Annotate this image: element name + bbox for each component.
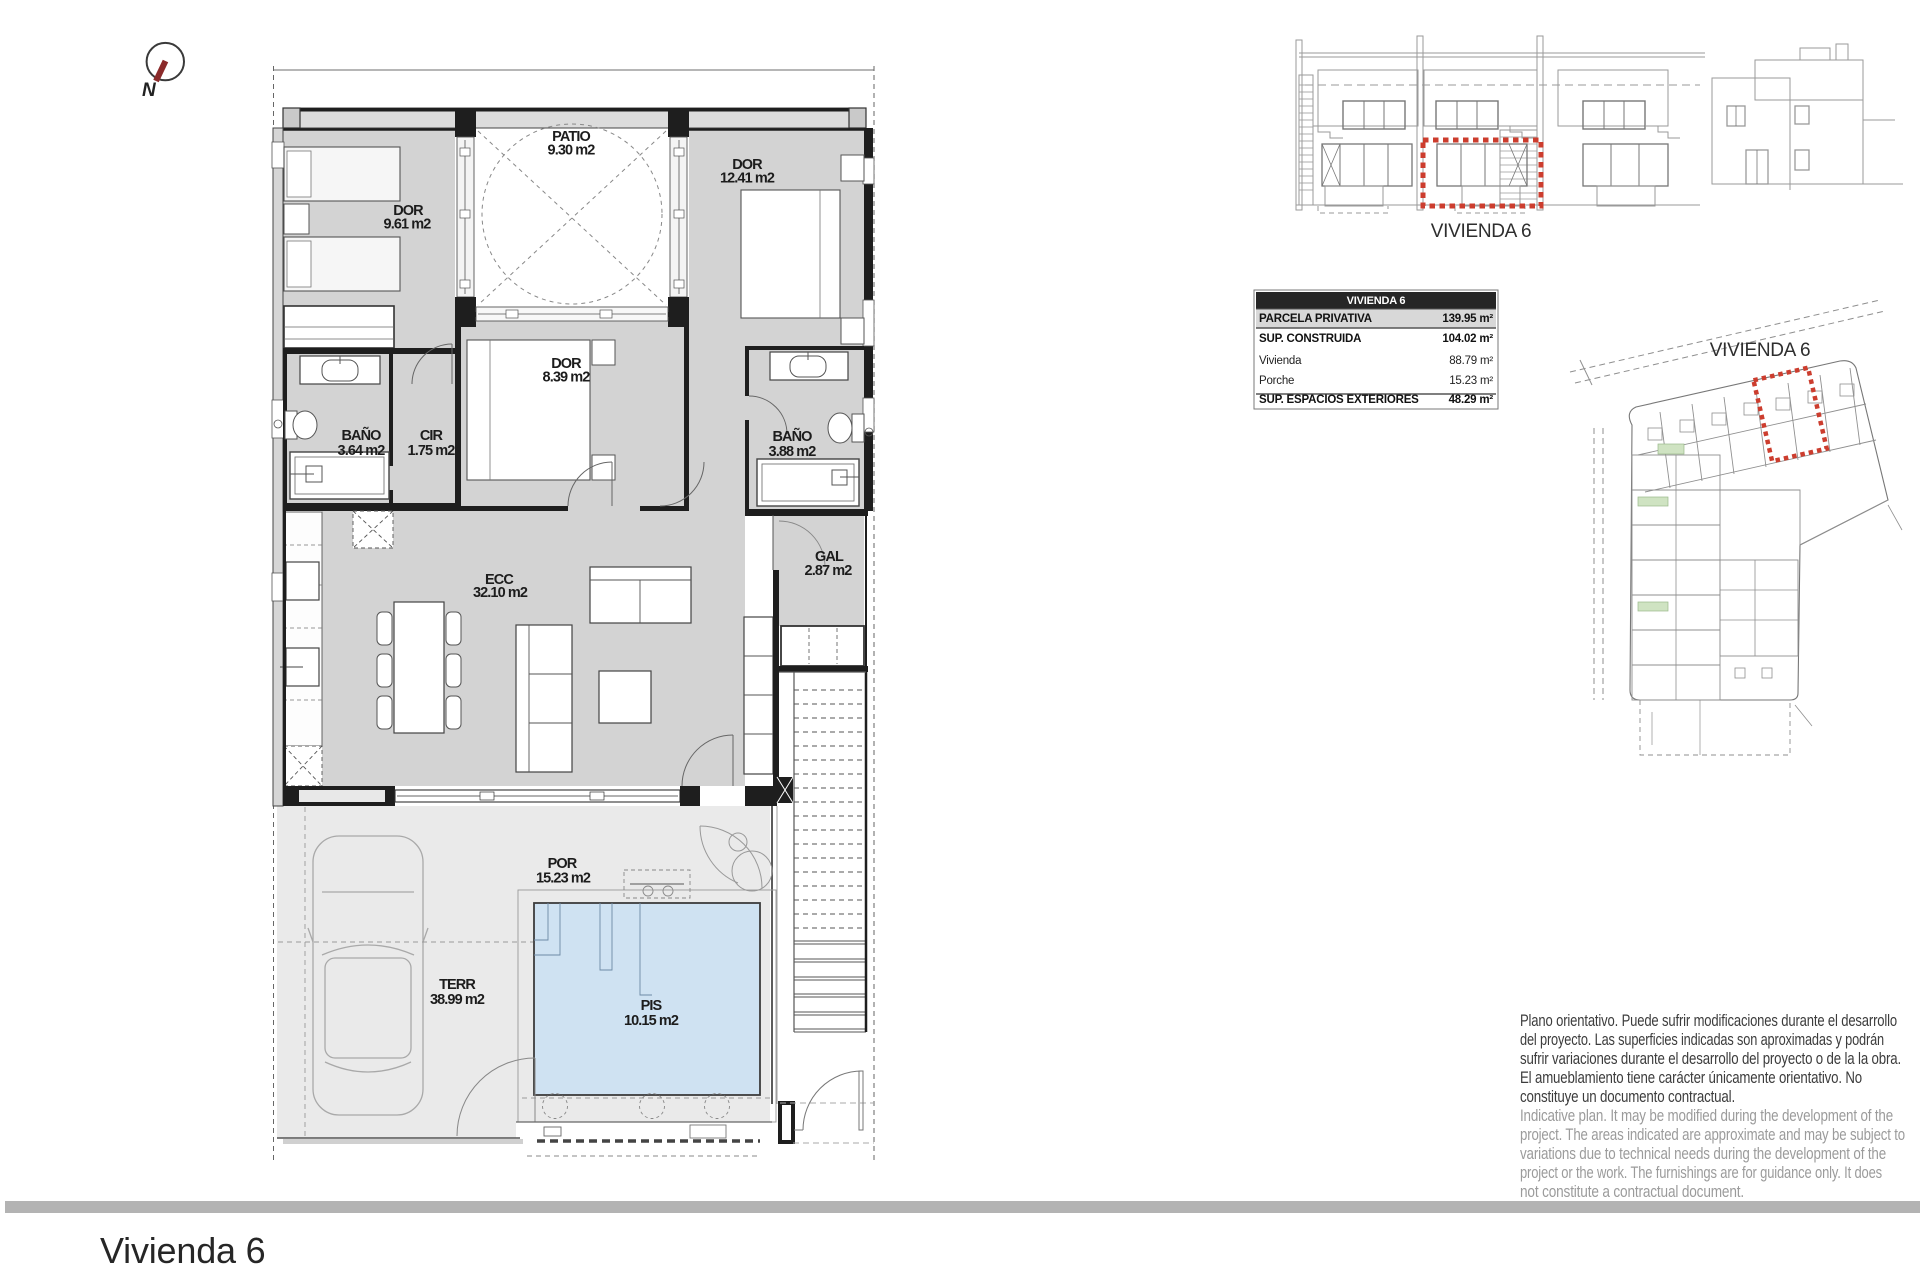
svg-text:VIVIENDA 6: VIVIENDA 6	[1431, 221, 1532, 242]
svg-text:SUP. ESPACIOS EXTERIORES: SUP. ESPACIOS EXTERIORES	[1259, 394, 1419, 406]
svg-text:VIVIENDA 6: VIVIENDA 6	[1347, 295, 1406, 307]
svg-text:88.79 m²: 88.79 m²	[1449, 355, 1493, 367]
svg-text:BAÑO3.64 m2: BAÑO3.64 m2	[338, 426, 386, 459]
svg-text:N: N	[142, 80, 157, 101]
svg-text:PATIO9.30 m2: PATIO9.30 m2	[548, 129, 596, 159]
svg-text:del proyecto. Las superficies: del proyecto. Las superficies indicadas …	[1520, 1030, 1884, 1049]
svg-text:sufrir variaciones durante el: sufrir variaciones durante el desarrollo…	[1520, 1049, 1901, 1068]
svg-text:Plano orientativo. Puede sufri: Plano orientativo. Puede sufrir modifica…	[1520, 1011, 1897, 1030]
svg-text:El amueblamiento tiene carácte: El amueblamiento tiene carácter únicamen…	[1520, 1068, 1862, 1087]
svg-text:variations due to technical ne: variations due to technical needs during…	[1520, 1144, 1886, 1163]
svg-text:SUP. CONSTRUIDA: SUP. CONSTRUIDA	[1259, 333, 1361, 345]
svg-text:constituye un documento contra: constituye un documento contractual.	[1520, 1087, 1735, 1106]
svg-text:Vivienda: Vivienda	[1259, 355, 1302, 367]
svg-text:PARCELA PRIVATIVA: PARCELA PRIVATIVA	[1259, 313, 1372, 325]
svg-text:project or the work. The furni: project or the work. The furnishings are…	[1520, 1163, 1882, 1182]
svg-text:VIVIENDA 6: VIVIENDA 6	[1710, 340, 1811, 361]
svg-text:104.02 m²: 104.02 m²	[1442, 333, 1493, 345]
svg-text:Porche: Porche	[1259, 375, 1294, 387]
svg-text:project. The areas indicated a: project. The areas indicated are approxi…	[1520, 1125, 1905, 1144]
svg-text:15.23 m²: 15.23 m²	[1449, 375, 1493, 387]
svg-text:48.29 m²: 48.29 m²	[1449, 394, 1494, 406]
svg-text:not constitute a contractual d: not constitute a contractual document.	[1520, 1182, 1744, 1201]
svg-text:Indicative plan. It may be mod: Indicative plan. It may be modified duri…	[1520, 1106, 1893, 1125]
svg-text:Vivienda 6: Vivienda 6	[100, 1230, 265, 1271]
svg-text:139.95 m²: 139.95 m²	[1442, 313, 1493, 325]
svg-text:BAÑO3.88 m2: BAÑO3.88 m2	[769, 427, 817, 460]
